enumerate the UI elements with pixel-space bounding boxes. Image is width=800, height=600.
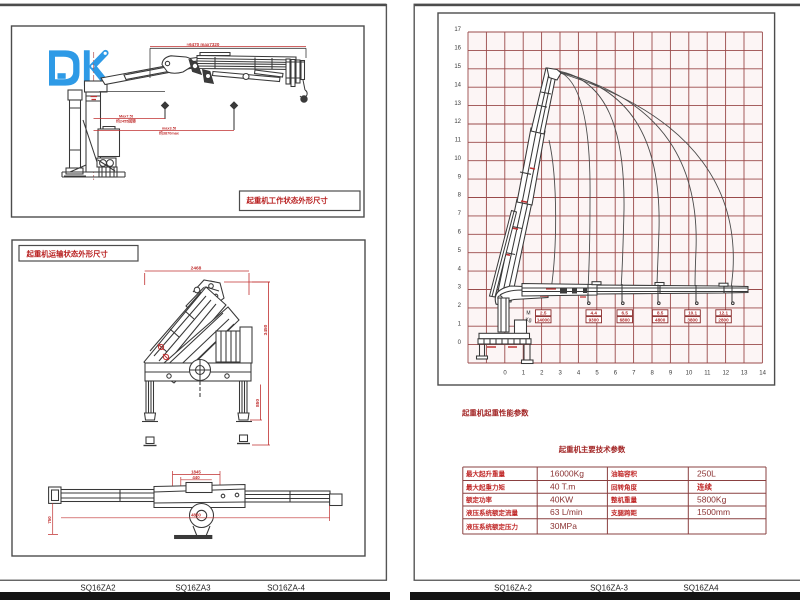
svg-text:7: 7: [632, 371, 636, 377]
svg-text:整机重量: 整机重量: [611, 495, 638, 504]
svg-text:9: 9: [669, 371, 673, 377]
svg-text:SQ16ZA-2: SQ16ZA-2: [494, 584, 532, 593]
svg-text:起重机工作状态外形尺寸: 起重机工作状态外形尺寸: [246, 196, 329, 205]
svg-text:SQ16ZA-3: SQ16ZA-3: [590, 584, 628, 593]
svg-text:4.4: 4.4: [591, 311, 598, 316]
svg-text:1: 1: [522, 371, 526, 377]
svg-text:4: 4: [458, 266, 462, 272]
svg-text:回转角度: 回转角度: [611, 482, 638, 491]
svg-text:10: 10: [454, 156, 461, 162]
svg-text:1: 1: [458, 321, 462, 327]
svg-text:6: 6: [458, 230, 462, 236]
svg-text:5: 5: [458, 248, 462, 254]
svg-text:7: 7: [458, 211, 462, 217]
svg-text:11: 11: [704, 371, 711, 377]
svg-text:9300: 9300: [589, 318, 600, 323]
svg-text:14000: 14000: [537, 318, 550, 323]
svg-text:750: 750: [47, 516, 52, 524]
svg-text:3: 3: [458, 285, 462, 291]
svg-text:5800Kg: 5800Kg: [697, 494, 727, 504]
svg-text:250L: 250L: [697, 469, 716, 479]
svg-text:4800: 4800: [655, 318, 666, 323]
svg-text:13: 13: [741, 371, 748, 377]
svg-text:SQ16ZA2: SQ16ZA2: [80, 584, 116, 593]
svg-text:Kg: Kg: [525, 318, 531, 324]
svg-text:40KW: 40KW: [550, 494, 573, 504]
svg-text:液压系统额定流量: 液压系统额定流量: [466, 508, 519, 517]
svg-text:2800: 2800: [718, 318, 729, 323]
svg-text:2: 2: [540, 371, 544, 377]
svg-text:16000Kg: 16000Kg: [550, 469, 584, 479]
svg-text:850: 850: [255, 399, 261, 407]
svg-text:8: 8: [651, 371, 655, 377]
svg-text:10.1: 10.1: [688, 311, 697, 316]
svg-text:≈6470 max7320: ≈6470 max7320: [187, 42, 220, 47]
svg-text:8: 8: [458, 193, 462, 199]
svg-text:max3.5t: max3.5t: [162, 127, 177, 131]
svg-text:2.5: 2.5: [540, 311, 547, 316]
svg-text:起重机主要技术参数: 起重机主要技术参数: [558, 445, 626, 454]
svg-text:约2455回转: 约2455回转: [116, 118, 136, 123]
svg-text:6.5: 6.5: [622, 311, 629, 316]
svg-text:17: 17: [454, 27, 461, 33]
svg-text:额定功率: 额定功率: [466, 495, 493, 504]
svg-text:12.1: 12.1: [719, 311, 728, 316]
svg-text:3800: 3800: [687, 318, 698, 323]
svg-text:液压系统额定压力: 液压系统额定压力: [466, 522, 519, 531]
svg-text:起重机运输状态外形尺寸: 起重机运输状态外形尺寸: [26, 250, 109, 259]
svg-text:4: 4: [577, 371, 581, 377]
svg-text:支腿跨距: 支腿跨距: [610, 508, 638, 517]
svg-text:8.5: 8.5: [657, 311, 664, 316]
svg-text:15: 15: [454, 64, 461, 70]
svg-text:起重机起重性能参数: 起重机起重性能参数: [461, 409, 529, 418]
svg-text:油箱容积: 油箱容积: [611, 469, 638, 478]
svg-text:SQ16ZA3: SQ16ZA3: [175, 584, 211, 593]
svg-text:0: 0: [503, 371, 507, 377]
svg-text:连续: 连续: [697, 482, 712, 492]
svg-text:13: 13: [454, 101, 461, 107]
svg-text:SO16ZA-4: SO16ZA-4: [267, 584, 305, 593]
svg-text:最大起升重量: 最大起升重量: [466, 469, 506, 478]
svg-text:最大起重力矩: 最大起重力矩: [466, 482, 506, 491]
svg-text:14: 14: [759, 371, 766, 377]
svg-text:0: 0: [458, 340, 462, 346]
svg-text:30MPa: 30MPa: [550, 521, 577, 531]
svg-text:14: 14: [454, 82, 461, 88]
svg-text:3: 3: [559, 371, 563, 377]
svg-text:16: 16: [454, 46, 461, 52]
svg-text:5: 5: [595, 371, 599, 377]
svg-text:2: 2: [458, 303, 462, 309]
svg-text:3450: 3450: [263, 324, 269, 335]
svg-text:63 L/min: 63 L/min: [550, 507, 583, 517]
svg-text:6: 6: [614, 371, 618, 377]
svg-text:440: 440: [192, 475, 200, 480]
svg-text:SQ16ZA4: SQ16ZA4: [683, 584, 719, 593]
svg-text:Max7.5t: Max7.5t: [119, 115, 134, 119]
svg-text:4860: 4860: [191, 513, 201, 518]
svg-text:约3870max: 约3870max: [159, 131, 180, 136]
svg-text:1845: 1845: [191, 470, 201, 475]
svg-text:M: M: [526, 311, 530, 317]
svg-text:10: 10: [686, 371, 693, 377]
svg-text:40 T.m: 40 T.m: [550, 482, 575, 492]
svg-text:11: 11: [455, 138, 462, 144]
svg-text:6800: 6800: [620, 318, 631, 323]
svg-text:1500mm: 1500mm: [697, 507, 730, 517]
svg-text:12: 12: [722, 371, 729, 377]
svg-text:9: 9: [458, 174, 462, 180]
svg-text:2468: 2468: [191, 266, 202, 272]
svg-text:12: 12: [454, 119, 461, 125]
